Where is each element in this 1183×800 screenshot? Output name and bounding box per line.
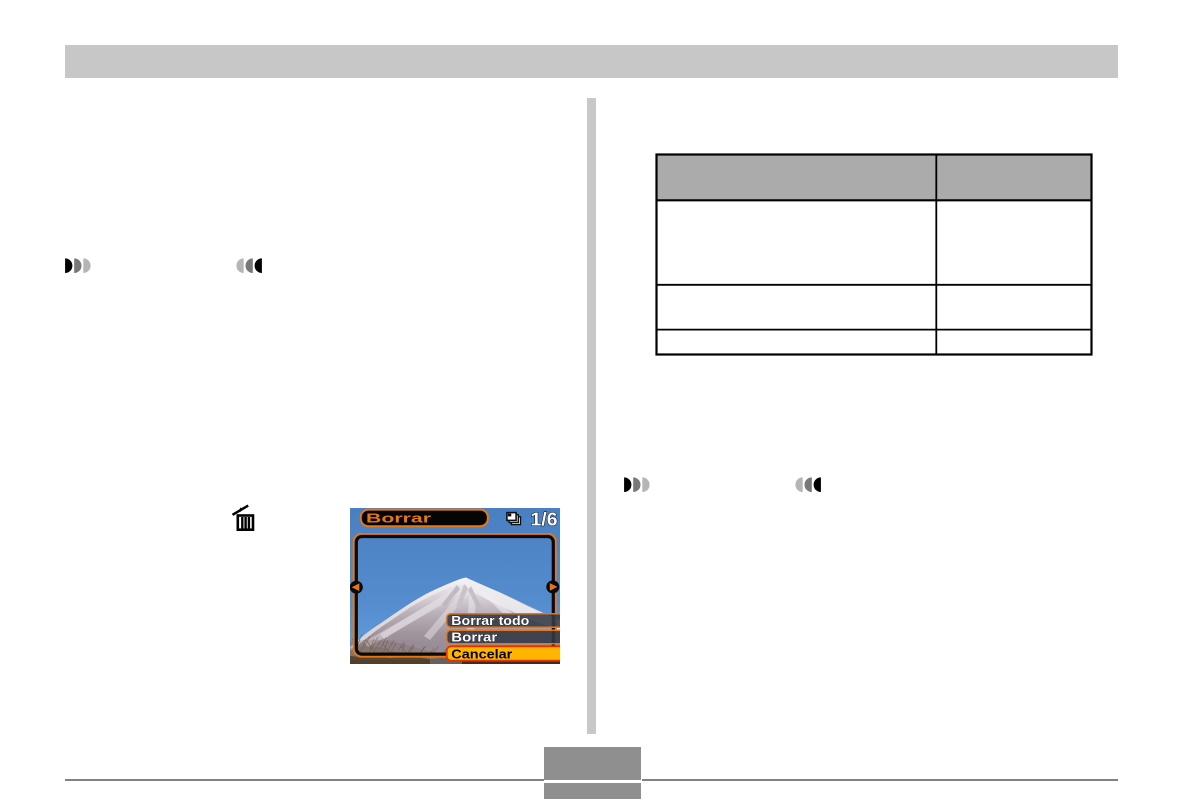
- svg-text:Borrar: Borrar: [366, 510, 431, 525]
- svg-text:1/6: 1/6: [531, 509, 558, 529]
- svg-text:Borrar: Borrar: [451, 631, 497, 645]
- svg-text:Cancelar: Cancelar: [451, 647, 512, 661]
- svg-text:Borrar todo: Borrar todo: [451, 614, 529, 628]
